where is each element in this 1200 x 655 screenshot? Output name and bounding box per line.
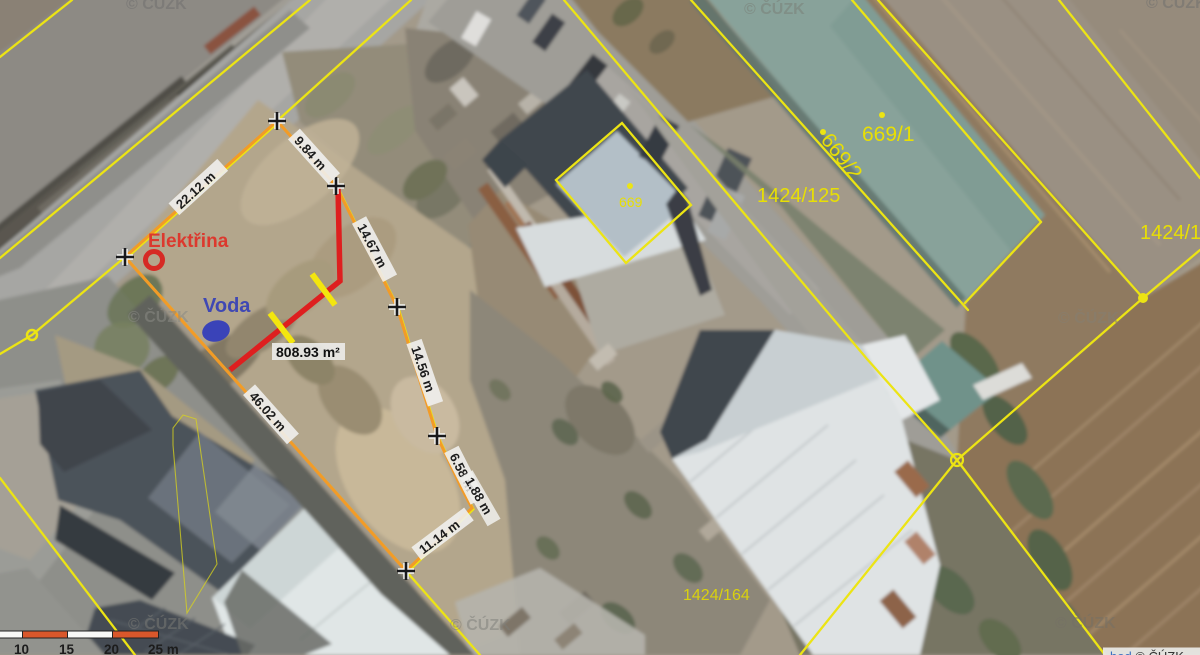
svg-text:© ČÚZK: © ČÚZK xyxy=(1055,613,1116,632)
svg-text:1424/125: 1424/125 xyxy=(757,185,840,207)
svg-text:© ČÚZK: © ČÚZK xyxy=(450,615,511,634)
svg-text:© ČÚZK: © ČÚZK xyxy=(128,614,189,633)
svg-text:© ČÚZK: © ČÚZK xyxy=(128,307,189,326)
svg-text:669: 669 xyxy=(619,194,643,210)
svg-text:© ČÚZK: © ČÚZK xyxy=(744,0,805,18)
svg-text:15: 15 xyxy=(59,642,75,655)
svg-text:25 m: 25 m xyxy=(148,642,179,655)
svg-text:© ČÚZK: © ČÚZK xyxy=(1058,308,1119,327)
svg-text:1424/16: 1424/16 xyxy=(1140,222,1200,244)
svg-text:Elektřina: Elektřina xyxy=(148,231,229,252)
svg-text:808.93 m²: 808.93 m² xyxy=(276,344,340,360)
svg-text:© ČÚZK: © ČÚZK xyxy=(1146,0,1200,12)
svg-text:669/1: 669/1 xyxy=(862,123,915,146)
svg-text:Voda: Voda xyxy=(203,295,251,317)
svg-text:1424/164: 1424/164 xyxy=(683,587,750,604)
svg-text:20: 20 xyxy=(104,642,119,655)
svg-text:© ČÚZK: © ČÚZK xyxy=(126,0,187,13)
svg-text:10: 10 xyxy=(14,642,29,655)
svg-text:bod © ČÚZK: bod © ČÚZK xyxy=(1110,649,1184,655)
